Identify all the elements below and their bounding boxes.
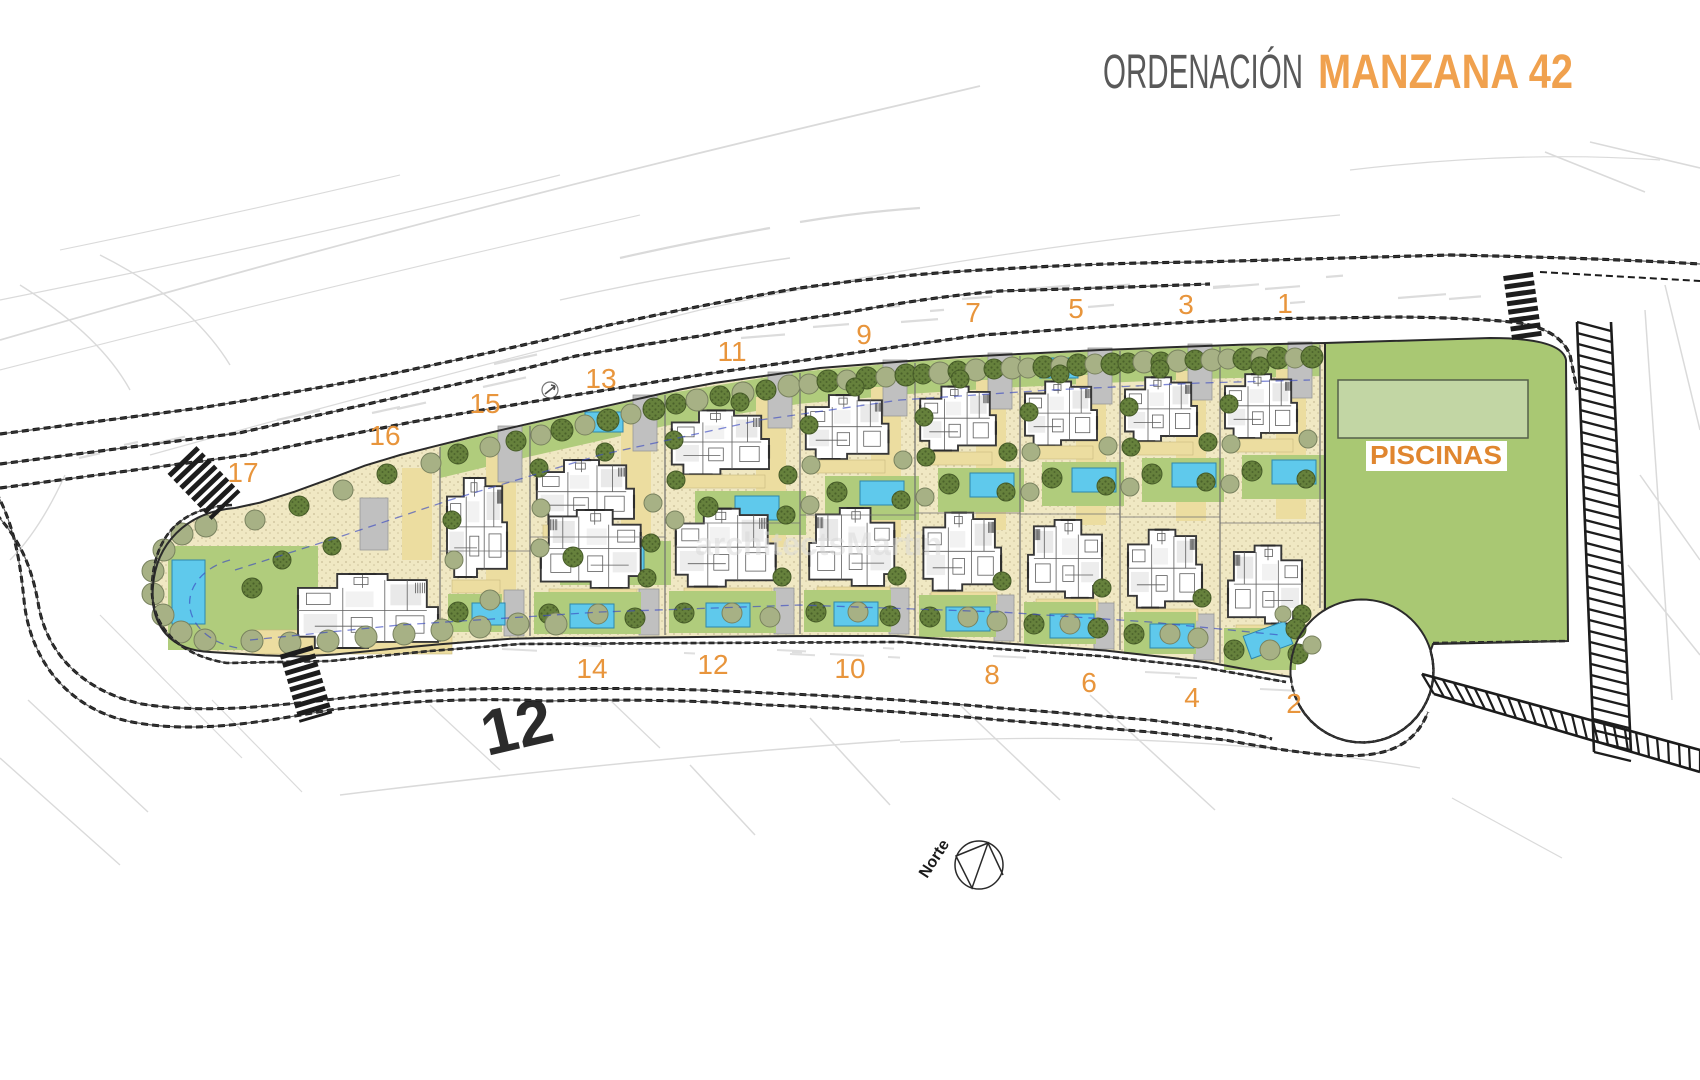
svg-text:14: 14 <box>576 653 607 684</box>
svg-text:11: 11 <box>717 336 746 367</box>
svg-text:architectsMartin: architectsMartin <box>695 526 942 562</box>
svg-text:16: 16 <box>369 420 400 451</box>
svg-text:MANZANA 42: MANZANA 42 <box>1318 46 1573 99</box>
svg-text:1: 1 <box>1277 288 1293 319</box>
svg-text:8: 8 <box>984 659 1000 690</box>
svg-text:3: 3 <box>1178 289 1194 320</box>
svg-text:5: 5 <box>1068 293 1084 324</box>
svg-text:10: 10 <box>834 653 865 684</box>
svg-text:2: 2 <box>1286 688 1302 719</box>
svg-text:PISCINAS: PISCINAS <box>1370 440 1502 470</box>
svg-text:4: 4 <box>1184 682 1200 713</box>
svg-text:9: 9 <box>856 319 872 350</box>
svg-text:12: 12 <box>697 649 728 680</box>
svg-text:6: 6 <box>1081 667 1097 698</box>
svg-text:7: 7 <box>965 297 981 328</box>
svg-text:17: 17 <box>227 457 258 488</box>
svg-text:13: 13 <box>585 363 616 394</box>
svg-text:ORDENACIÓN: ORDENACIÓN <box>1103 45 1303 99</box>
svg-text:15: 15 <box>469 388 500 419</box>
